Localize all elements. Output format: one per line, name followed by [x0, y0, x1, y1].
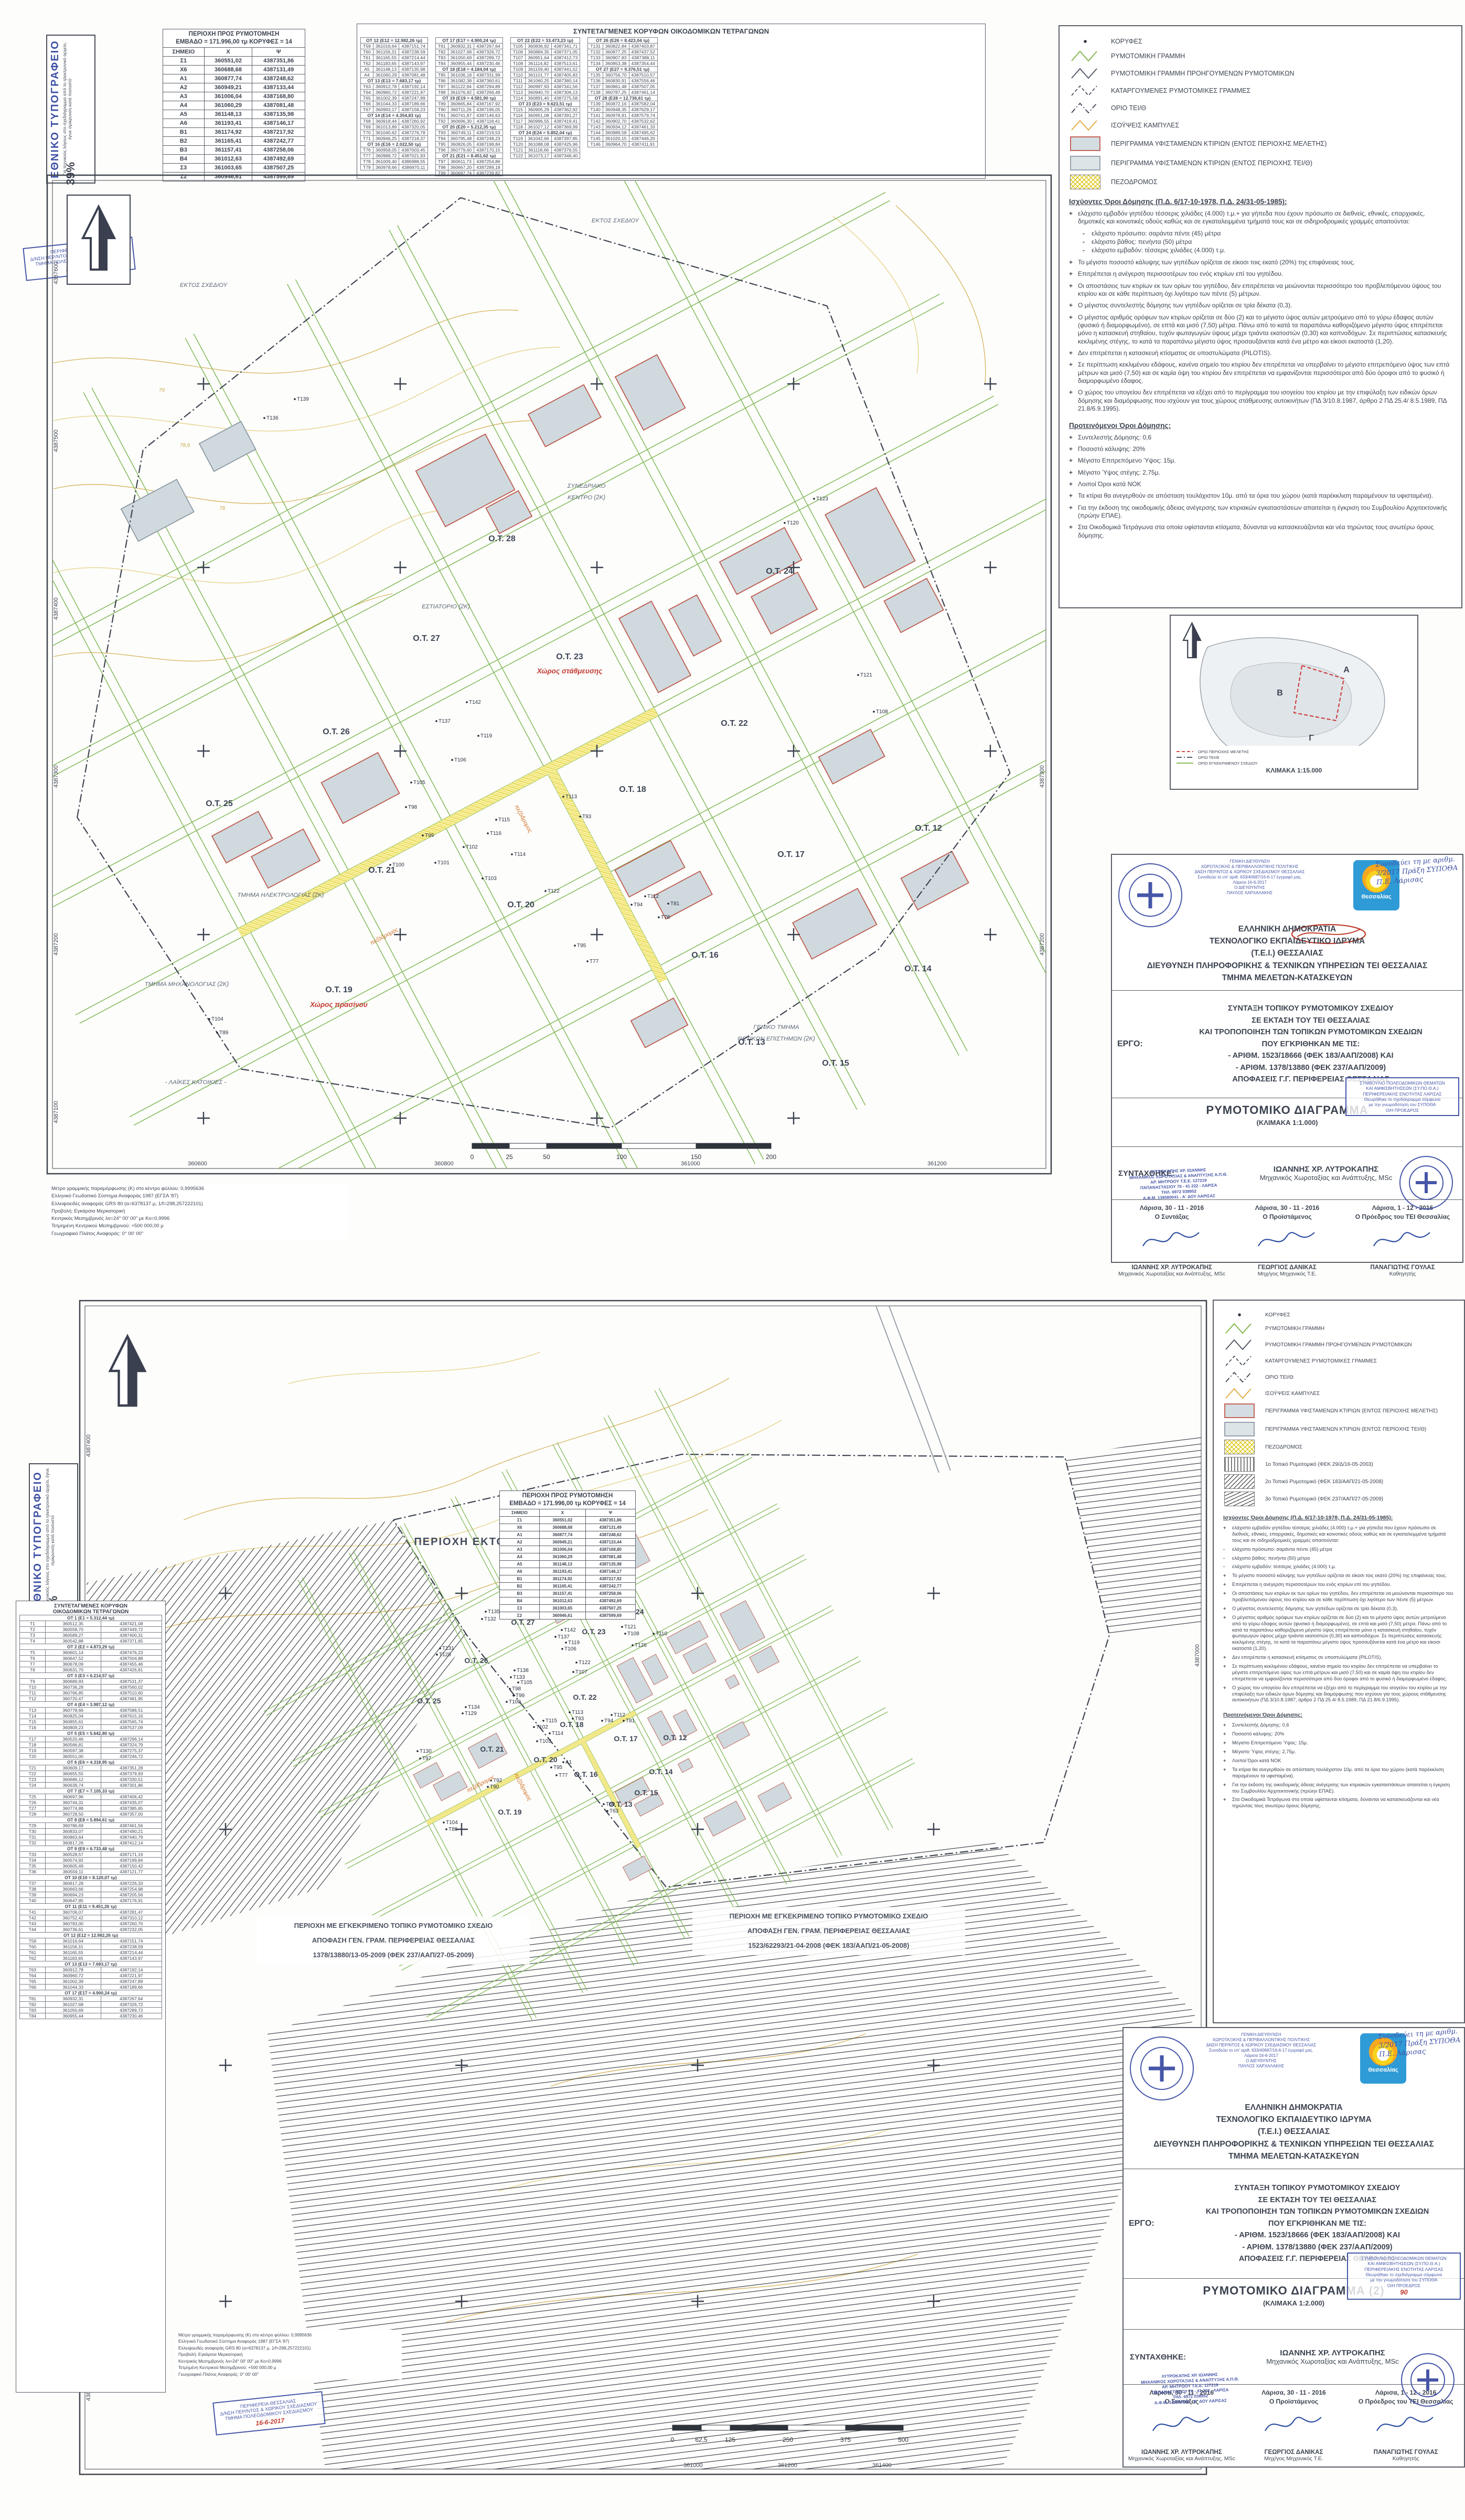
zig-legend-icon [1069, 49, 1102, 63]
signer-name: ΙΩΑΝΝΗΣ ΧΡ. ΛΥΤΡΟΚΑΠΗΣ [1114, 1264, 1229, 1271]
table-row: Τ138360787,254387461,14 [588, 90, 658, 95]
svg-text:ΕΚΤΟΣ ΣΧΕΔΙΟΥ: ΕΚΤΟΣ ΣΧΕΔΙΟΥ [592, 218, 640, 224]
table-row: Τ78361009,404386988,55 [361, 159, 428, 165]
table-row: Τ92360696,304387118,41 [435, 119, 502, 124]
table-row: ΟΤ 5 (Ε5 = 5.642,80 τμ) [20, 1731, 162, 1736]
table-row: ΟΤ 16 (Ε16 = 2.022,50 τμ) [361, 142, 428, 147]
svg-text:361200: 361200 [927, 1161, 947, 1167]
table-row: Τ15360855,614387565,74 [20, 1719, 162, 1725]
svg-text:78: 78 [219, 506, 226, 511]
svg-text:50: 50 [543, 1153, 550, 1161]
hatched-zone-northeast [1065, 1433, 1201, 1635]
svg-text:Τ105: Τ105 [520, 1680, 532, 1686]
table-row: Τ64360960,724387221,97 [20, 1973, 162, 1979]
svg-text:ΕΚΤΟΣ ΣΧΕΔΙΟΥ: ΕΚΤΟΣ ΣΧΕΔΙΟΥ [180, 282, 228, 288]
table-row: Τ44360736,614387232,05 [20, 1927, 162, 1933]
handwritten-note: Συνοδεύει τη με αριθμ.3/2017 Πράξη ΣΥΠΟΘ… [1375, 855, 1459, 887]
svg-text:Τ139: Τ139 [297, 396, 309, 402]
signature-column: Λάρισα, 30 - 11 - 2016 Ο Συντάξας ΙΩΑΝΝΗ… [1114, 1204, 1229, 1283]
svg-text:Ο.Τ. 12: Ο.Τ. 12 [663, 1733, 687, 1742]
table-row: ΟΤ 27 (Ε27 = 9.376,51 τμ) [588, 67, 658, 72]
table-row: Τ23360686,124387330,51 [20, 1777, 162, 1783]
table-row: Τ68360918,444387260,92 [361, 119, 428, 124]
legend-item: ΟΡΙΟ ΤΕΙ/Θ [1223, 1370, 1455, 1384]
svg-text:πεζόδρομος: πεζόδρομος [513, 804, 533, 834]
table-row: Τ65361002,394387247,89 [20, 1979, 162, 1985]
signer-title: Καθηγητής [1345, 1271, 1460, 1277]
table-row: ΟΤ 17 (Ε17 = 4.900,24 τμ) [20, 1990, 162, 1996]
svg-text:Ο.Τ. 24: Ο.Τ. 24 [766, 567, 793, 576]
legend-label: ΠΕΡΙΓΡΑΜΜΑ ΥΦΙΣΤΑΜΕΝΩΝ ΚΤΙΡΙΩΝ (ΕΝΤΟΣ ΠΕ… [1265, 1427, 1426, 1432]
table-row: Τ61361165,554387214,44 [361, 55, 428, 61]
svg-text:Τ138: Τ138 [517, 1668, 529, 1674]
svg-text:Ο.Τ. 25: Ο.Τ. 25 [206, 799, 233, 808]
table-row: Τ90360711,264387196,05 [435, 107, 502, 113]
hellenic-republic-round-stamp-icon [1116, 861, 1184, 929]
table-row: Τ77360988,724387021,93 [361, 153, 428, 159]
table-row: Τ81360932,314387267,64 [20, 1996, 162, 2002]
table-row: Τ87361122,944387294,89 [435, 84, 502, 90]
approved-plan-zone1-label: ΠΕΡΙΟΧΗ ΜΕ ΕΓΚΕΚΡΙΜΕΝΟ ΤΟΠΙΚΟ ΡΥΜΟΤΟΜΙΚΟ… [730, 1912, 928, 1949]
signature-role: Ο Πρόεδρος του ΤΕΙ Θεσσαλίας [1345, 1213, 1460, 1220]
svg-text:Τ113: Τ113 [565, 794, 577, 800]
table-row: Τ60361156,314387238,59 [361, 49, 428, 55]
signature-scribble-icon [1374, 2412, 1437, 2435]
svg-text:Τ81: Τ81 [626, 1718, 635, 1724]
svg-text:Τ132: Τ132 [484, 1616, 496, 1622]
table-row: Τ145361020,154387446,20 [588, 136, 658, 142]
area-table-sheet1: ΠΕΡΙΟΧΗ ΠΡΟΣ ΡΥΜΟΤΟΜΗΣΗΕΜΒΑΔΟ = 171.996,… [163, 29, 305, 181]
scale-bar [472, 1143, 771, 1149]
table-row: Τ14360825,044387615,16 [20, 1713, 162, 1719]
svg-text:Χώρος στάθμευσης: Χώρος στάθμευσης [537, 667, 603, 675]
signature-scribble-icon [1263, 2412, 1325, 2435]
svg-text:4387400: 4387400 [53, 597, 59, 620]
legend-label: ΟΡΙΟ ΕΓΚΕΚΡΙΜΕΝΟΥ ΣΧΕΔΙΟΥ [1198, 761, 1258, 766]
area-table-subtitle: ΕΜΒΑΔΟ = 171.996,00 τμ ΚΟΡΥΦΕΣ = 14 [176, 39, 292, 45]
svg-text:Τ130: Τ130 [420, 1749, 432, 1754]
table-row: ΟΤ 28 (Ε28 = 12.736,61 τμ) [588, 95, 658, 101]
svg-text:0: 0 [671, 2436, 675, 2443]
svg-text:Τ77: Τ77 [590, 959, 599, 964]
signature-scribble-icon [1150, 2412, 1213, 2435]
legend-item: ΠΕΖΟΔΡΟΜΟΣ [1069, 175, 1452, 189]
table-row: Τ76360958,054387003,45 [361, 147, 428, 153]
table-row: ΟΤ 8 (Ε8 = 5.894,61 τμ) [20, 1817, 162, 1823]
term-item: Ο μέγιστος αριθμός ορόφων των κτιρίων ορ… [1078, 314, 1452, 346]
legend-item: ΡΥΜΟΤΟΜΙΚΗ ΓΡΑΜΜΗ [1223, 1322, 1455, 1335]
table-row: Τ144360989,584387495,62 [588, 130, 658, 136]
signature-scribble-icon [1140, 1227, 1203, 1250]
engineer-stamp: ΛΥΤΡΟΚΑΠΗΣ ΧΡ. ΙΩΑΝΝΗΣΜΗΧΑΝΙΚΟΣ ΧΩΡΟΤΑΞΙ… [1118, 1166, 1239, 1202]
svg-text:ΠΕΡΙΟΧΗ ΜΕ ΕΓΚΕΚΡΙΜΕΝΟ ΤΟΠΙΚΟ: ΠΕΡΙΟΧΗ ΜΕ ΕΓΚΕΚΡΙΜΕΝΟ ΤΟΠΙΚΟ ΡΥΜΟΤΟΜΙΚΟ… [294, 1922, 493, 1929]
legend-label: ΡΥΜΟΤΟΜΙΚΗ ΓΡΑΜΜΗ [1111, 52, 1185, 60]
table-row: Α6361193,414387146,17 [163, 119, 305, 127]
svg-text:4387200: 4387200 [53, 933, 59, 956]
svg-text:Τ112: Τ112 [647, 894, 659, 899]
org-line: ΕΛΛΗΝΙΚΗ ΔΗΜΟΚΡΑΤΙΑ [1117, 923, 1457, 935]
line-legend-icon [1176, 749, 1194, 754]
svg-text:Ο.Τ. 19: Ο.Τ. 19 [498, 1808, 521, 1816]
org-line: ΔΙΕΥΘΥΝΣΗ ΠΛΗΡΟΦΟΡΙΚΗΣ & ΤΕΧΝΙΚΩΝ ΥΠΗΡΕΣ… [1117, 960, 1457, 972]
legend-item: ΠΕΡΙΓΡΑΜΜΑ ΥΦΙΣΤΑΜΕΝΩΝ ΚΤΙΡΙΩΝ (ΕΝΤΟΣ ΠΕ… [1069, 155, 1452, 171]
line-legend-icon [1176, 755, 1194, 760]
table-row: Τ59361016,644387151,74 [361, 44, 428, 49]
zig-legend-icon [1223, 1338, 1256, 1352]
legend-label: 2ο Τοπικό Ρυμοτομικό (ΦΕΚ 183/ΑΑΠ/21-05-… [1265, 1479, 1383, 1485]
legend-label: ΟΡΙΟ ΠΕΡΙΟΧΗΣ ΜΕΛΕΤΗΣ [1198, 749, 1249, 754]
legend-label: ΚΟΡΥΦΕΣ [1111, 38, 1142, 45]
legend-item: ΚΟΡΥΦΕΣ [1069, 37, 1452, 46]
table-row: Τ25360697,964387406,42 [20, 1794, 162, 1800]
svg-text:Τ142: Τ142 [469, 700, 481, 705]
svg-text:Τ100: Τ100 [392, 862, 404, 868]
table-row: ΟΤ 14 (Ε14 = 4.354,83 τμ) [361, 113, 428, 119]
term-item: Το μέγιστο ποσοστό κάλυψης των γηπέδων ο… [1078, 259, 1355, 266]
table-row: Σ3361003,654387507,25 [163, 163, 305, 172]
proposed-term-item: Ποσοστό κάλυψης: 20% [1078, 445, 1145, 453]
legend-label: ΠΕΡΙΓΡΑΜΜΑ ΥΦΙΣΤΑΜΕΝΩΝ ΚΤΙΡΙΩΝ (ΕΝΤΟΣ ΠΕ… [1111, 140, 1327, 147]
svg-text:Τ104: Τ104 [446, 1820, 458, 1826]
table-row: Τ137360861,484387507,05 [588, 84, 658, 90]
coords-col-1: ΟΤ 12 (Ε12 = 12.982,26 τμ)Τ59361016,6443… [360, 37, 428, 170]
term-item: ελάχιστο πρόσωπο: σαράντα πέντε (45) μέτ… [1092, 230, 1221, 238]
table-row: Α3361006,044387168,80 [163, 92, 305, 101]
table-row: ΟΤ 1 (Ε1 = 5.312,44 τμ) [20, 1615, 162, 1621]
table-row: Α3361006,044387168,80 [500, 1546, 636, 1553]
svg-text:361000: 361000 [683, 2462, 703, 2469]
legend-label: ΙΣΟΫΨΕΙΣ ΚΑΜΠΥΛΕΣ [1111, 122, 1179, 129]
svg-text:Τ135: Τ135 [488, 1609, 500, 1615]
table-row: ΟΤ 3 (Ε3 = 6.214,57 τμ) [20, 1673, 162, 1679]
svg-text:25: 25 [506, 1153, 513, 1161]
svg-text:Τ121: Τ121 [860, 672, 872, 678]
svg-text:62,5: 62,5 [695, 2436, 708, 2443]
table-row: ΟΤ 26 (Ε26 = 8.423,04 τμ) [588, 38, 658, 44]
svg-text:Τ89: Τ89 [219, 1030, 229, 1036]
legend-item: ΠΕΖΟΔΡΟΜΟΣ [1223, 1440, 1455, 1454]
term-item: Οι αποστάσεις των κτιρίων εκ των ορίων τ… [1078, 282, 1452, 298]
svg-text:Τ93: Τ93 [575, 1716, 584, 1722]
table-row: Α4361060,294387081,48 [163, 101, 305, 110]
tei-round-stamp-icon [1399, 2351, 1457, 2409]
hatch-legend-icon [1223, 1492, 1256, 1506]
table-row: Τ97360611,734387254,86 [435, 159, 502, 165]
table-row: Τ110361101,774387405,83 [510, 72, 580, 78]
svg-text:Τ95: Τ95 [577, 943, 586, 949]
svg-text:Τ94: Τ94 [604, 1718, 614, 1724]
svg-text:ΓΕΝΙΚΟ ΤΜΗΜΑ: ΓΕΝΙΚΟ ΤΜΗΜΑ [753, 1024, 799, 1031]
block-labels: Ο.Τ. 28Ο.Τ. 27Ο.Τ. 26Ο.Τ. 25Ο.Τ. 24Ο.Τ. … [206, 534, 942, 1068]
sypotha-stamp: ΣΥΜΒΟΥΛΙΟ ΠΟΛΕΟΔΟΜΙΚΩΝ ΘΕΜΑΤΩΝΚΑΙ ΑΜΦΙΣΒ… [1345, 1077, 1459, 1116]
area-table-header: Ψ [252, 47, 305, 56]
table-row: ΟΤ 4 (Ε4 = 3.987,12 τμ) [20, 1702, 162, 1708]
svg-text:Τ115: Τ115 [546, 1718, 557, 1724]
north-arrow-icon [67, 195, 130, 284]
signature-role: Ο Προϊστάμενος [1229, 1213, 1345, 1220]
svg-text:Ο.Τ. 28: Ο.Τ. 28 [488, 534, 516, 543]
table-row: ΟΤ 2 (Ε2 = 4.873,29 τμ) [20, 1644, 162, 1650]
svg-text:250: 250 [783, 2436, 793, 2443]
project-description: ΣΥΝΤΑΞΗ ΤΟΠΙΚΟΥ ΡΥΜΟΤΟΜΙΚΟΥ ΣΧΕΔΙΟΥΣΕ ΕΚ… [1164, 1003, 1457, 1085]
table-row: Τ65361002,394387247,89 [361, 95, 428, 101]
table-row: Τ132360877,254387437,52 [588, 49, 658, 55]
table-row: ΟΤ 18 (Ε18 = 4.184,04 τμ) [435, 67, 502, 72]
signature-role: Ο Συντάξας [1114, 1213, 1229, 1220]
svg-text:Τ137: Τ137 [558, 1634, 570, 1640]
table-row: Τ119361042,664387397,85 [510, 136, 580, 142]
legend-label: ΡΥΜΟΤΟΜΙΚΗ ΓΡΑΜΜΗ ΠΡΟΗΓΟΥΜΕΝΩΝ ΡΥΜΟΤΟΜΙΚ… [1111, 70, 1294, 77]
table-row: Τ143360934,124387461,33 [588, 124, 658, 130]
location-inset-map: ΑΒΓ ΟΡΙΟ ΠΕΡΙΟΧΗΣ ΜΕΛΕΤΗΣΟΡΙΟ ΤΕΙ/ΘΟΡΙΟ … [1170, 615, 1418, 790]
scanned-planning-document: ΕΘΝΙΚΟ ΤΥΠΟΓΡΑΦΕΙΟ Για τεχνικούς λόγους … [0, 0, 1465, 2520]
table-row: Τ19360597,384387275,37 [20, 1748, 162, 1754]
table-row: Τ16360809,234387537,09 [20, 1725, 162, 1731]
block-coords-table-sheet1: ΣΥΝΤΕΤΑΓΜΕΝΕΣ ΚΟΡΥΦΩΝ ΟΙΚΟΔΟΜΙΚΩΝ ΤΕΤΡΑΓ… [357, 24, 986, 179]
table-row: Τ3360589,274387400,31 [20, 1633, 162, 1638]
table-row: Τ62361183,654387143,97 [361, 61, 428, 67]
rect-legend-icon [1223, 1403, 1256, 1419]
svg-text:361000: 361000 [681, 1161, 700, 1167]
table-row: Α1360877,744387248,62 [163, 74, 305, 83]
frame-coordinate-ticks: 4387600438750043874004387300438720043871… [53, 262, 1045, 1167]
legend-label: 1ο Τοπικό Ρυμοτομικό (ΦΕΚ 29/Δ/16-05-200… [1265, 1462, 1373, 1467]
coords-table-title: ΣΥΝΤΕΤΑΓΜΕΝΕΣ ΚΟΡΥΦΩΝ ΟΙΚΟΔΟΜΙΚΩΝ ΤΕΤΡΑΓ… [360, 27, 982, 35]
table-row: Β3361157,414387258,06 [500, 1590, 636, 1597]
north-arrow-icon [110, 1336, 145, 1406]
table-row: Τ82361027,684387326,72 [20, 2002, 162, 2008]
table-row: Τ61361165,554387214,44 [20, 1950, 162, 1956]
table-row: Τ13360778,664387586,51 [20, 1708, 162, 1713]
term-item: Επιτρέπεται η ανέγερση περισσοτέρων του … [1078, 270, 1283, 278]
legend-label: ΠΕΡΙΓΡΑΜΜΑ ΥΦΙΣΤΑΜΕΝΩΝ ΚΤΙΡΙΩΝ (ΕΝΤΟΣ ΠΕ… [1111, 159, 1312, 167]
table-row: Τ117360996,554387419,41 [510, 119, 580, 124]
coords-col-3: ΟΤ 22 (Ε22 = 33.473,23 τμ)Τ105360836,924… [510, 37, 581, 159]
svg-text:Τ105: Τ105 [413, 780, 425, 786]
inset-map-canvas: ΑΒΓ [1171, 616, 1417, 746]
proposed-term-item: Συντελεστής Δόμησης: 0,6 [1078, 434, 1151, 442]
table-row: Τ18360566,814387324,79 [20, 1742, 162, 1748]
signature-date: Λάρισα, 30 - 11 - 2016 [1114, 1204, 1229, 1211]
svg-text:Τ120: Τ120 [787, 520, 799, 526]
area-table-header: Χ [204, 47, 252, 56]
table-row: Σ2360946,614387599,69 [500, 1612, 636, 1619]
handwritten-note: Συνοδεύει τη με αριθμ.3/2017 Πράξη ΣΥΠΟΘ… [1378, 2028, 1462, 2060]
zig-legend-icon [1069, 119, 1102, 132]
landuse-labels: Χώρος στάθμευσηςΧώρος πρασίνου [309, 667, 603, 1009]
table-row: Τ32360817,264387412,14 [20, 1840, 162, 1846]
table-row: Τ64360960,724387221,97 [361, 90, 428, 95]
svg-text:Τ103: Τ103 [485, 876, 497, 882]
table-row: Τ21360609,174387351,28 [20, 1765, 162, 1771]
svg-text:Γ: Γ [1309, 734, 1314, 743]
org-line: ΤΕΧΝΟΛΟΓΙΚΟ ΕΚΠΑΙΔΕΥΤΙΚΟ ΙΔΡΥΜΑ [1117, 935, 1457, 947]
svg-text:Χώρος πρασίνου: Χώρος πρασίνου [309, 1001, 368, 1009]
area-table-sheet2: ΠΕΡΙΟΧΗ ΠΡΟΣ ΡΥΜΟΤΟΜΗΣΗΕΜΒΑΔΟ = 171.996,… [499, 1490, 636, 1620]
term-item: ελάχιστο εμβαδόν γηπέδου τέσσερις χιλιάδ… [1078, 210, 1452, 226]
svg-text:Τ97: Τ97 [422, 1756, 432, 1762]
table-row: Τ86361082,384387360,61 [435, 78, 502, 84]
legend-and-terms-panel-sheet2: ΚΟΡΥΦΕΣΡΥΜΟΤΟΜΙΚΗ ΓΡΑΜΜΗΡΥΜΟΤΟΜΙΚΗ ΓΡΑΜΜ… [1213, 1300, 1465, 2023]
table-row: Β1361174,924387217,92 [500, 1575, 636, 1582]
svg-text:Ο.Τ. 15: Ο.Τ. 15 [822, 1059, 849, 1068]
dot-legend-icon [1223, 1311, 1256, 1319]
svg-text:4387400: 4387400 [85, 1434, 92, 1457]
svg-text:Ο.Τ. 14: Ο.Τ. 14 [904, 964, 932, 973]
table-row: Τ71360946,254387218,37 [361, 136, 428, 142]
svg-text:Ο.Τ. 23: Ο.Τ. 23 [582, 1627, 605, 1636]
svg-text:Τ129: Τ129 [465, 1711, 477, 1717]
table-row: ΟΤ 12 (Ε12 = 12.982,26 τμ) [20, 1933, 162, 1938]
table-row: ΟΤ 10 (Ε10 = 8.120,07 τμ) [20, 1875, 162, 1881]
table-row: Τ34360574,924387199,84 [20, 1858, 162, 1863]
legend-item: ΚΑΤΑΡΓΟΥΜΕΝΕΣ ΡΥΜΟΤΟΜΙΚΕΣ ΓΡΑΜΜΕΣ [1069, 84, 1452, 98]
printing-office-banner-2: ΕΘΝΙΚΟ ΤΥΠΟΓΡΑΦΕΙΟ Για τεχνικούς λόγους … [29, 1463, 78, 1617]
table-row: ΟΤ 12 (Ε12 = 12.982,26 τμ) [361, 38, 428, 44]
table-row: Β1361174,924387217,92 [163, 127, 305, 136]
table-row: ΟΤ 7 (Ε7 = 7.105,33 τμ) [20, 1788, 162, 1794]
zig-legend-icon [1223, 1387, 1256, 1400]
coords-col-4: ΟΤ 26 (Ε26 = 8.423,04 τμ)Τ131360822,8443… [587, 37, 658, 147]
svg-text:ΠΕΡΙΟΧΗ ΜΕ ΕΓΚΕΚΡΙΜΕΝΟ ΤΟΠΙΚΟ: ΠΕΡΙΟΧΗ ΜΕ ΕΓΚΕΚΡΙΜΕΝΟ ΤΟΠΙΚΟ ΡΥΜΟΤΟΜΙΚΟ… [730, 1912, 928, 1920]
table-row: ΟΤ 9 (Ε9 = 6.733,48 τμ) [20, 1846, 162, 1852]
table-row: Α2360949,214387133,44 [163, 83, 305, 92]
table-row: Τ38360663,664387254,98 [20, 1886, 162, 1892]
table-row: ΟΤ 13 (Ε13 = 7.683,17 τμ) [361, 78, 428, 84]
coords-col-2: ΟΤ 17 (Ε17 = 4.900,24 τμ)Τ81360932,31438… [435, 37, 503, 176]
table-row: Τ2360558,704387449,72 [20, 1627, 162, 1633]
svg-text:πεζόδρομος: πεζόδρομος [512, 1772, 533, 1803]
table-row: Τ70361040,624387276,78 [361, 130, 428, 136]
svg-text:Α1: Α1 [565, 1760, 572, 1765]
table-row: Τ20360551,004387246,72 [20, 1754, 162, 1760]
svg-text:4387100: 4387100 [53, 1101, 59, 1123]
svg-text:ΑΠΟΦΑΣΗ ΓΕΝ. ΓΡΑΜ. ΠΕΡΙΦΕΡΕΙΑΣ: ΑΠΟΦΑΣΗ ΓΕΝ. ΓΡΑΜ. ΠΕΡΙΦΕΡΕΙΑΣ ΘΕΣΣΑΛΙΑΣ [747, 1927, 910, 1935]
proposed-term-item: Στα Οικοδομικά Τετράγωνα στα οποία υφίστ… [1078, 523, 1452, 540]
legend-label: ΠΕΖΟΔΡΟΜΟΣ [1265, 1444, 1302, 1450]
hatch-legend-icon [1223, 1474, 1256, 1489]
legend-item: ΡΥΜΟΤΟΜΙΚΗ ΓΡΑΜΜΗ ΠΡΟΗΓΟΥΜΕΝΩΝ ΡΥΜΟΤΟΜΙΚ… [1223, 1338, 1455, 1352]
svg-text:Τ123: Τ123 [816, 496, 828, 502]
proposed-term-item: Τα κτίρια θα ανεγερθούν σε απόσταση τουλ… [1078, 492, 1433, 500]
svg-text:ΣΥΝΕΔΡΙΑΚΟ: ΣΥΝΕΔΡΙΑΚΟ [567, 483, 606, 489]
table-row: ΟΤ 19 (Ε19 = 4.581,90 τμ) [435, 95, 502, 101]
svg-text:200: 200 [766, 1153, 776, 1161]
table-row: Τ135360756,704387510,57 [588, 72, 658, 78]
svg-text:Τ110: Τ110 [656, 1631, 667, 1637]
hellenic-republic-round-stamp-icon [1128, 2034, 1196, 2103]
legend-item: ΠΕΡΙΓΡΑΜΜΑ ΥΦΙΣΤΑΜΕΝΩΝ ΚΤΙΡΙΩΝ (ΕΝΤΟΣ ΠΕ… [1223, 1403, 1455, 1419]
svg-text:Τ128: Τ128 [439, 1652, 451, 1658]
table-row: Τ84360955,444387230,46 [435, 61, 502, 67]
hatch-legend-icon [1069, 175, 1102, 189]
svg-text:Τ122: Τ122 [579, 1660, 591, 1666]
vertex-points: Τ139Τ136Τ142Τ137Τ119Τ106Τ123Τ120Τ121Τ108… [208, 396, 888, 1036]
table-row: Τ82361027,684387326,72 [435, 49, 502, 55]
scale-bar [672, 2425, 903, 2430]
svg-text:Τ116: Τ116 [490, 831, 501, 837]
svg-text:Τ93: Τ93 [582, 814, 592, 820]
svg-text:361200: 361200 [778, 2462, 797, 2469]
table-row: Τ122361073,174387348,40 [510, 153, 580, 159]
table-row: Τ8360631,704387426,81 [20, 1667, 162, 1673]
svg-text:Τ89: Τ89 [448, 1827, 458, 1832]
table-row: Τ114360891,404387275,58 [510, 95, 580, 101]
table-row: Τ41360706,074387281,47 [20, 1910, 162, 1915]
table-row: Τ43360783,004387260,70 [20, 1921, 162, 1927]
table-row: Τ31360863,644387440,79 [20, 1835, 162, 1840]
road [876, 1306, 950, 1473]
zig-legend-icon [1223, 1354, 1256, 1368]
tei-round-stamp-icon [1397, 1154, 1455, 1211]
table-row: Τ6360647,524387504,88 [20, 1656, 162, 1661]
legend-label: ΡΥΜΟΤΟΜΙΚΗ ΓΡΑΜΜΗ [1265, 1326, 1324, 1332]
table-row: Τ28360728,504387357,00 [20, 1811, 162, 1817]
svg-text:4387500: 4387500 [53, 430, 59, 452]
legend-item: ΙΣΟΫΨΕΙΣ ΚΑΜΠΥΛΕΣ [1223, 1387, 1455, 1400]
svg-text:Τ107: Τ107 [575, 1669, 587, 1675]
table-row: Τ107360951,644387412,73 [510, 55, 580, 61]
legend-label: ΚΑΤΑΡΓΟΥΜΕΝΕΣ ΡΥΜΟΤΟΜΙΚΕΣ ΓΡΑΜΜΕΣ [1111, 87, 1250, 94]
signer-name: ΓΕΩΡΓΙΟΣ ΔΑΝΙΚΑΣ [1229, 1264, 1345, 1271]
table-row: Τ27360774,884387385,65 [20, 1806, 162, 1811]
svg-text:Τ104: Τ104 [211, 1016, 223, 1022]
table-row: Τ26360744,314387435,07 [20, 1800, 162, 1806]
table-row: Τ95360826,054387198,84 [435, 142, 502, 147]
signer-title: Μηχ/γος Μηχανικός Τ.Ε. [1229, 1271, 1345, 1277]
term-item: Ο χώρος του υπογείου δεν επιτρέπεται να … [1078, 389, 1452, 413]
svg-text:Τ114: Τ114 [552, 1731, 563, 1736]
proposed-term-item: Για την έκδοση της οικοδομικής άδειας αν… [1078, 504, 1452, 520]
svg-text:Ο.Τ. 17: Ο.Τ. 17 [777, 850, 805, 859]
signature-column: Λάρισα, 30 - 11 - 2016 Ο Προϊστάμενος ΓΕ… [1229, 1204, 1345, 1283]
table-row: Α5361148,134387135,98 [361, 67, 428, 72]
table-row: Τ84360955,444387230,46 [20, 2013, 162, 2019]
rect-legend-icon [1069, 136, 1102, 152]
table-row: Τ113360940,704387306,13 [510, 90, 580, 95]
table-row: ΟΤ 20 (Ε20 = 5.212,35 τμ) [435, 124, 502, 130]
table-row: Τ111361060,254387380,14 [510, 78, 580, 84]
svg-text:361400: 361400 [872, 2462, 892, 2469]
table-row: Τ83361050,694387289,72 [435, 55, 502, 61]
table-row: Τ85361036,184387331,99 [435, 72, 502, 78]
svg-text:Τ119: Τ119 [568, 1640, 580, 1646]
map-legend-2-extra: 1ο Τοπικό Ρυμοτομικό (ΦΕΚ 29/Δ/16-05-200… [1223, 1457, 1455, 1506]
table-row: ΟΤ 17 (Ε17 = 4.900,24 τμ) [435, 38, 502, 44]
dot-legend-icon [1069, 37, 1102, 46]
rect-legend-icon [1069, 155, 1102, 171]
svg-text:1523/62293/21-04-2008 (ΦΕΚ 183: 1523/62293/21-04-2008 (ΦΕΚ 183/ΑΑΠ/21-05… [748, 1942, 910, 1949]
svg-text:Ο.Τ. 20: Ο.Τ. 20 [507, 900, 534, 909]
proposed-terms-title: Προτεινόμενοι Όροι Δόμησης: [1069, 422, 1452, 430]
signature-date: Λάρισα, 30 - 11 - 2016 [1229, 1204, 1345, 1211]
svg-text:Τ63: Τ63 [609, 1808, 619, 1814]
legend-label: ΡΥΜΟΤΟΜΙΚΗ ΓΡΑΜΜΗ ΠΡΟΗΓΟΥΜΕΝΩΝ ΡΥΜΟΤΟΜΙΚ… [1265, 1342, 1412, 1348]
svg-text:Ο.Τ. 25: Ο.Τ. 25 [417, 1697, 441, 1705]
svg-text:150: 150 [691, 1153, 701, 1161]
table-row: Τ120361088,084387425,96 [510, 142, 580, 147]
table-row: Τ116360951,084387391,27 [510, 113, 580, 119]
svg-text:Τ95: Τ95 [553, 1765, 563, 1771]
map-legend: ΚΟΡΥΦΕΣΡΥΜΟΤΟΜΙΚΗ ΓΡΑΜΜΗΡΥΜΟΤΟΜΙΚΗ ΓΡΑΜΜ… [1069, 37, 1452, 189]
table-row: Τ106360884,354387371,05 [510, 49, 580, 55]
table-row: Τ24360639,744387301,86 [20, 1783, 162, 1788]
table-row: Τ40360647,854387176,91 [20, 1898, 162, 1904]
svg-text:500: 500 [898, 2436, 908, 2443]
table-row: Τ7360678,094387455,46 [20, 1661, 162, 1667]
area-table-title: ΠΕΡΙΟΧΗ ΠΡΟΣ ΡΥΜΟΤΟΜΗΣΗ [189, 31, 280, 37]
legend-item: ΟΡΙΟ ΤΕΙ/Θ [1176, 755, 1417, 760]
